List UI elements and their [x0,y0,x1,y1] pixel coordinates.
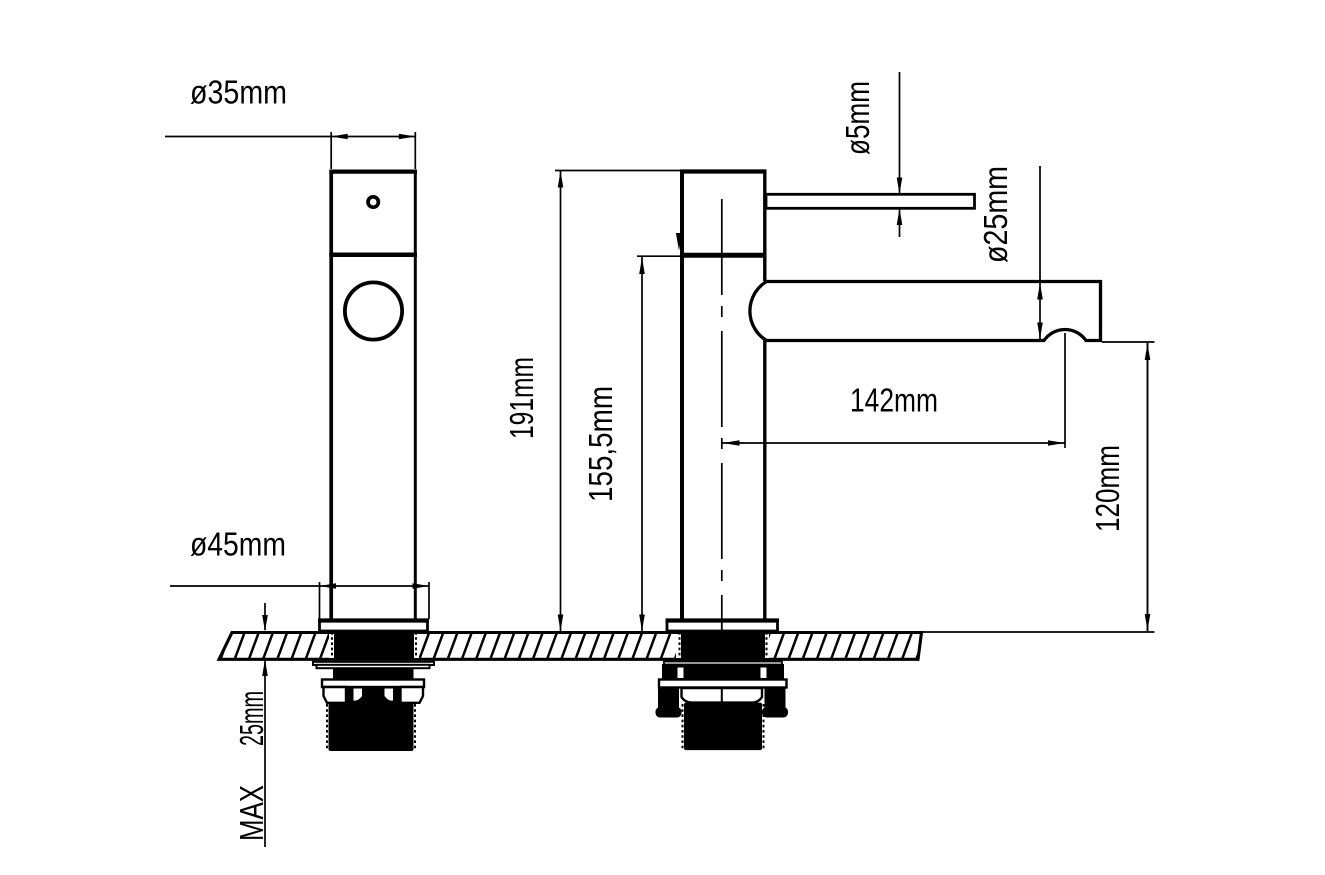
svg-text:ø45mm: ø45mm [190,526,286,563]
svg-text:ø5mm: ø5mm [839,81,876,155]
svg-text:142mm: 142mm [850,382,938,419]
svg-text:25mm: 25mm [233,691,270,746]
svg-text:120mm: 120mm [1089,445,1126,532]
svg-text:155,5mm: 155,5mm [582,386,619,502]
svg-text:191mm: 191mm [503,357,540,439]
svg-text:MAX: MAX [233,785,270,841]
svg-text:ø25mm: ø25mm [977,166,1014,263]
svg-text:ø35mm: ø35mm [190,74,287,111]
